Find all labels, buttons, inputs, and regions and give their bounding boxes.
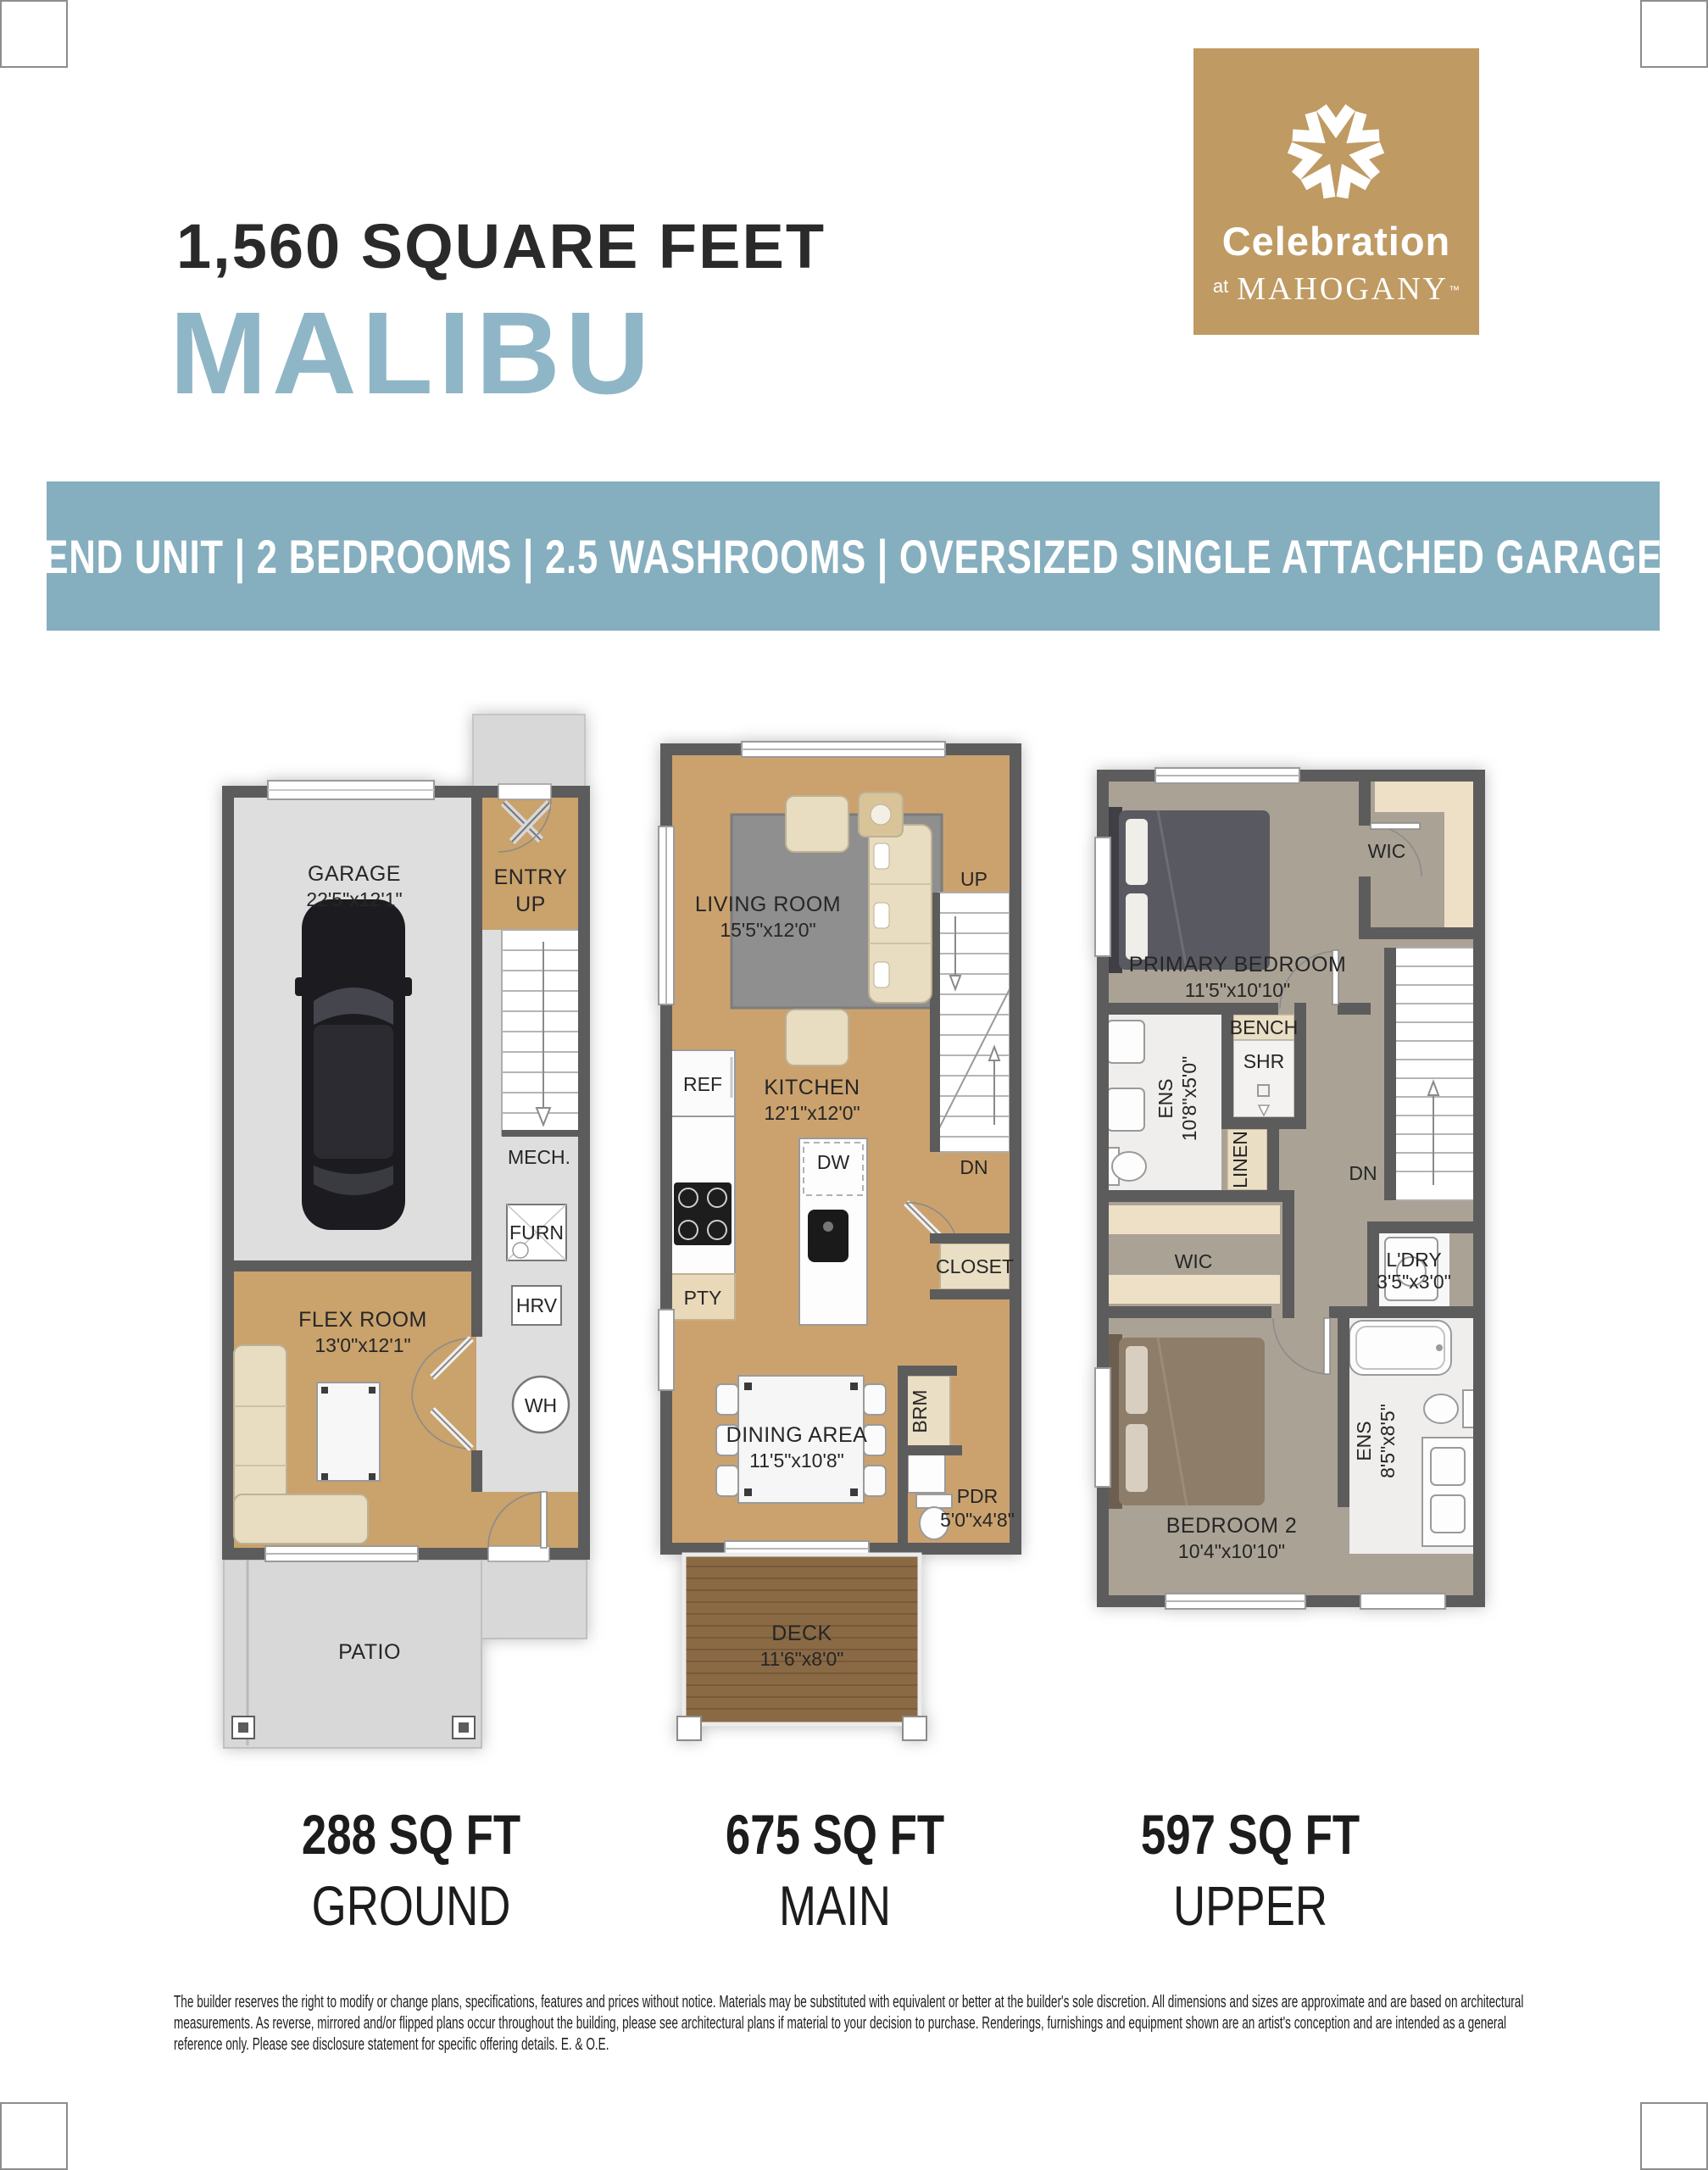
crop-mark-bottom-right xyxy=(1640,2102,1708,2170)
disclaimer-paragraph: The builder reserves the right to modify… xyxy=(174,1993,1523,2054)
label-dining-area-dims: 11'5"x10'8" xyxy=(749,1449,844,1472)
label-entry-up: UP xyxy=(515,893,546,916)
floor-summary-main: 675 SQ FT MAIN xyxy=(657,1802,1013,1938)
label-closet: CLOSET xyxy=(936,1255,1014,1277)
floor-plan-ground: GARAGE 22'5"x12'1" ENTRY UP MECH. FURN H… xyxy=(219,708,600,1755)
label-bedroom2: BEDROOM 2 xyxy=(1166,1514,1298,1538)
logo-community-text: atMAHOGANY™ xyxy=(1193,270,1479,308)
label-ens1-dims: 10'8"x5'0" xyxy=(1178,1056,1200,1142)
floor-area-main: 675 SQ FT xyxy=(693,1802,977,1867)
logo-brand-text: Celebration xyxy=(1193,218,1479,264)
label-brm: BRM xyxy=(909,1389,931,1433)
upper-stairs xyxy=(1392,948,1475,1200)
label-deck-dims: 11'6"x8'0" xyxy=(760,1648,844,1670)
label-living-room-dims: 15'5"x12'0" xyxy=(720,919,815,941)
label-furn: FURN xyxy=(509,1221,564,1244)
label-primary-bedroom-dims: 11'5"x10'10" xyxy=(1185,979,1290,1001)
label-kitchen-dims: 12'1"x12'0" xyxy=(764,1102,860,1124)
label-shr: SHR xyxy=(1243,1050,1285,1072)
floor-summary-ground: 288 SQ FT GROUND xyxy=(233,1802,589,1938)
label-deck: DECK xyxy=(771,1622,832,1645)
label-pty: PTY xyxy=(684,1287,722,1309)
label-dining-area: DINING AREA xyxy=(726,1423,868,1447)
label-wh: WH xyxy=(525,1394,557,1416)
disclaimer-text: The builder reserves the right to modify… xyxy=(174,1992,1540,2056)
label-ens2-dims: 8'5"x8'5" xyxy=(1377,1404,1399,1478)
label-entry: ENTRY xyxy=(494,865,568,889)
label-pdr: PDR xyxy=(957,1485,999,1507)
floor-plan-ground-svg: GARAGE 22'5"x12'1" ENTRY UP MECH. FURN H… xyxy=(219,708,600,1755)
label-ldry: L'DRY xyxy=(1386,1249,1441,1271)
bed-primary xyxy=(1109,807,1270,973)
patio-area xyxy=(224,1560,587,1748)
bathtub xyxy=(1349,1321,1451,1375)
bed-bedroom2 xyxy=(1109,1334,1265,1509)
label-kitchen: KITCHEN xyxy=(764,1076,860,1099)
crop-mark-bottom-left xyxy=(0,2102,68,2170)
label-bedroom2-dims: 10'4"x10'10" xyxy=(1178,1540,1285,1562)
label-hrv: HRV xyxy=(516,1294,558,1316)
label-patio: PATIO xyxy=(338,1640,401,1664)
label-garage: GARAGE xyxy=(308,862,401,886)
main-stairs xyxy=(938,893,1010,1152)
floor-name-main: MAIN xyxy=(693,1873,977,1938)
floor-plan-main-svg: LIVING ROOM 15'5"x12'0" UP DN KITCHEN 12… xyxy=(657,725,1026,1755)
label-bench: BENCH xyxy=(1230,1016,1299,1038)
label-pdr-dims: 5'0"x4'8" xyxy=(940,1509,1015,1531)
label-primary-bedroom: PRIMARY BEDROOM xyxy=(1129,953,1347,976)
page-title-square-feet: 1,560 SQUARE FEET xyxy=(176,210,826,282)
floor-plan-main: LIVING ROOM 15'5"x12'0" UP DN KITCHEN 12… xyxy=(657,725,1026,1755)
floor-summary-upper: 597 SQ FT UPPER xyxy=(1072,1802,1428,1938)
floor-area-upper: 597 SQ FT xyxy=(1108,1802,1393,1867)
label-living-room: LIVING ROOM xyxy=(695,893,841,916)
label-ldry-dims: 3'5"x3'0" xyxy=(1377,1271,1451,1293)
floor-plan-upper-svg: WIC PRIMARY BEDROOM 11'5"x10'10" BENCH S… xyxy=(1093,753,1492,1617)
ensuite2-fixtures xyxy=(1422,1390,1475,1546)
page-title-model-name: MALIBU xyxy=(170,287,655,421)
label-dw: DW xyxy=(817,1151,850,1173)
crop-mark-top-right xyxy=(1640,0,1708,68)
label-up: UP xyxy=(960,868,988,890)
logo-at-text: at xyxy=(1213,275,1228,297)
label-dn-upper: DN xyxy=(1349,1162,1377,1184)
label-flex-room: FLEX ROOM xyxy=(298,1308,427,1332)
starburst-icon xyxy=(1277,92,1395,211)
label-ens2: ENS xyxy=(1353,1421,1375,1461)
brochure-page: 1,560 SQUARE FEET MALIBU Celebration atM… xyxy=(0,0,1708,2170)
feature-banner: END UNIT | 2 BEDROOMS | 2.5 WASHROOMS | … xyxy=(47,481,1660,631)
crop-mark-top-left xyxy=(0,0,68,68)
logo-community-name: MAHOGANY xyxy=(1237,271,1449,307)
label-dn: DN xyxy=(960,1156,988,1178)
label-ref: REF xyxy=(683,1073,722,1095)
car-illustration xyxy=(295,899,412,1230)
floor-name-ground: GROUND xyxy=(269,1873,554,1938)
label-wic2: WIC xyxy=(1175,1250,1213,1272)
label-mech: MECH. xyxy=(508,1146,570,1168)
label-flex-room-dims: 13'0"x12'1" xyxy=(314,1334,410,1356)
logo-trademark: ™ xyxy=(1449,284,1460,297)
label-ens1: ENS xyxy=(1154,1078,1177,1118)
feature-banner-text: END UNIT | 2 BEDROOMS | 2.5 WASHROOMS | … xyxy=(44,529,1663,584)
label-linen: LINEN xyxy=(1229,1131,1251,1188)
ensuite1-fixtures xyxy=(1107,1021,1146,1185)
brand-logo: Celebration atMAHOGANY™ xyxy=(1193,48,1479,335)
floor-name-upper: UPPER xyxy=(1108,1873,1393,1938)
floor-plan-upper: WIC PRIMARY BEDROOM 11'5"x10'10" BENCH S… xyxy=(1093,753,1492,1617)
floor-area-ground: 288 SQ FT xyxy=(269,1802,554,1867)
label-wic1: WIC xyxy=(1368,840,1406,862)
entry-porch xyxy=(473,715,585,787)
label-garage-dims: 22'5"x12'1" xyxy=(306,888,402,910)
ground-stairs xyxy=(502,930,585,1135)
garage-door xyxy=(268,781,434,799)
